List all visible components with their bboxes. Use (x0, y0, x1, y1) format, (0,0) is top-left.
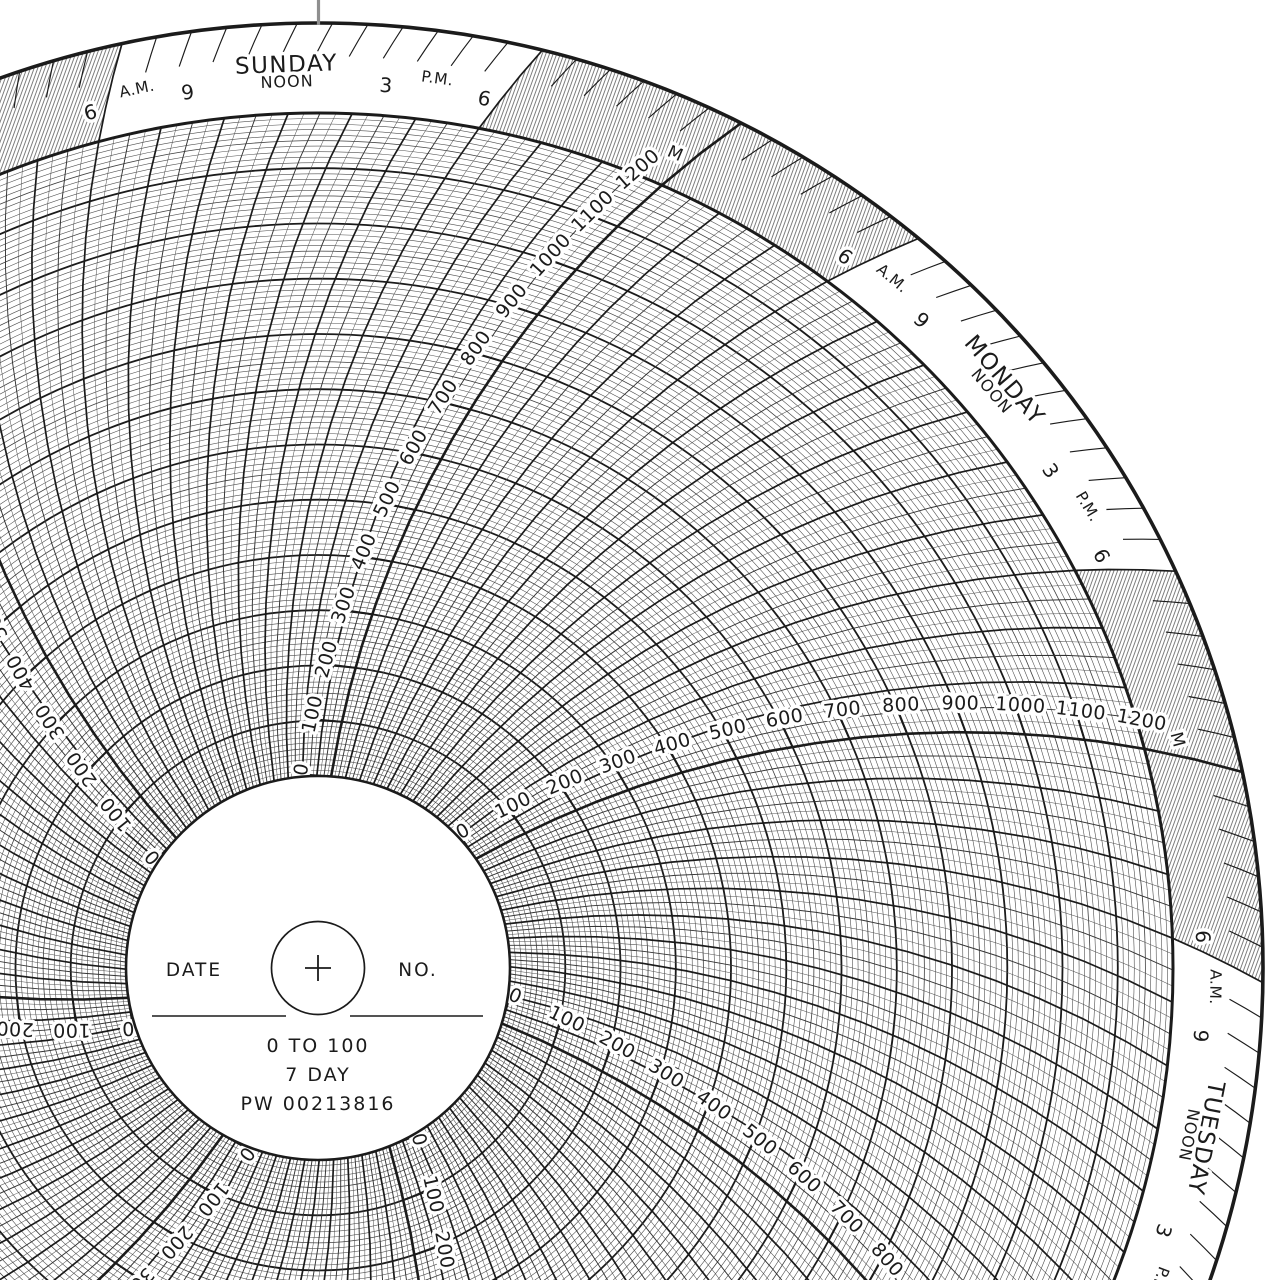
hour-tick (1089, 478, 1126, 481)
hour-tick (417, 31, 438, 62)
scale-value-label: 100 (418, 1174, 448, 1216)
scale-value-label: 700 (822, 697, 862, 723)
scale-value-label: 300 (327, 584, 360, 627)
time-line (370, 272, 815, 783)
hour-tick (1050, 419, 1087, 424)
scale-value-label: 300 (31, 700, 70, 744)
time-line (477, 1075, 824, 1280)
scale-value-label: 600 (783, 1156, 826, 1198)
time-line (252, 116, 384, 783)
grid-circle (0, 262, 1024, 1280)
time-line (0, 351, 146, 883)
time-line (460, 1098, 716, 1280)
scale-value-label: 200 (311, 638, 342, 680)
hub-no-label: NO. (398, 960, 438, 981)
scale-value-label: 200 (595, 1026, 639, 1063)
hub-part-number: PW 00213816 (241, 1093, 396, 1115)
scale-value-label: 1100 (1055, 697, 1108, 725)
chart-hub: DATE NO. 0 TO 100 7 DAY PW 00213816 (126, 776, 510, 1160)
hour-tick (1230, 999, 1262, 1018)
hour-tick (451, 36, 473, 66)
pm-label: P.M. (1072, 488, 1104, 525)
time-line (0, 1065, 152, 1158)
scale-value-label: 500 (707, 715, 749, 745)
hour-label: 3 (379, 73, 395, 98)
pm-label: P.M. (1145, 1264, 1173, 1280)
am-label: A.M. (873, 260, 912, 297)
hour-label: 3 (1037, 459, 1065, 484)
hour-tick (1070, 448, 1107, 452)
pm-label: P.M. (420, 67, 454, 89)
hour-tick (146, 37, 157, 73)
scale-value-label: 500 (369, 477, 405, 521)
hour-tick (961, 310, 997, 321)
circular-chart-paper: 0100200300400500600700800900100011001200… (0, 0, 1280, 1280)
scale-value-label: 100 (53, 1019, 91, 1041)
night-shading-sector (0, 44, 122, 319)
scale-value-label: 700 (424, 375, 463, 419)
time-line (345, 213, 719, 778)
hour-label: 9 (1188, 1029, 1213, 1045)
hub-duration-text: 7 DAY (285, 1064, 351, 1086)
hour-label: 9 (909, 307, 935, 334)
scale-value-label: 200 (430, 1229, 458, 1270)
time-line (503, 902, 1170, 1034)
hour-tick (1190, 1234, 1216, 1260)
grid-circle (0, 224, 1063, 1280)
hour-label: 6 (1088, 545, 1116, 568)
hub-date-label: DATE (166, 960, 222, 981)
hub-range-text: 0 TO 100 (267, 1035, 370, 1057)
scale-value-label: 600 (764, 704, 805, 732)
time-line (473, 1081, 798, 1280)
hour-tick (213, 27, 227, 62)
hour-tick (911, 261, 946, 275)
time-line (390, 332, 889, 790)
hour-tick (485, 42, 508, 71)
time-line (450, 585, 1082, 829)
time-line (0, 1080, 162, 1216)
time-line (58, 150, 204, 814)
am-label: A.M. (1206, 969, 1225, 1005)
scale-value-label: 700 (826, 1196, 868, 1238)
time-line (445, 556, 1067, 824)
scale-value-label: 200 (0, 1016, 34, 1040)
grid-circle (0, 240, 1046, 1280)
hour-tick (1200, 1201, 1227, 1226)
hour-label: 6 (1191, 930, 1215, 945)
time-line (0, 190, 184, 831)
hour-tick (936, 285, 971, 297)
time-line (498, 1034, 975, 1280)
hour-tick (349, 24, 368, 56)
hour-tick (383, 27, 403, 59)
hour-tick (179, 32, 191, 67)
chart-canvas: 0100200300400500600700800900100011001200… (0, 0, 1280, 1280)
time-line (457, 1100, 701, 1280)
hour-tick (1106, 508, 1143, 509)
hour-tick (1180, 1267, 1205, 1280)
am-label: A.M. (118, 77, 156, 102)
scale-value-label: 800 (882, 693, 921, 717)
hour-tick (1228, 1033, 1260, 1053)
grid-circle (0, 334, 952, 1280)
time-line (0, 177, 189, 825)
noon-label: NOON (260, 71, 314, 92)
time-line (452, 1105, 672, 1280)
scale-value-label: 900 (941, 692, 979, 714)
hour-label: 6 (476, 85, 494, 111)
hour-label: 9 (180, 79, 197, 105)
scale-value-label: 1000 (995, 693, 1047, 718)
grid-circle (0, 251, 1035, 1280)
hour-label: 3 (1150, 1221, 1177, 1241)
scale-value-label: 400 (2, 651, 40, 695)
